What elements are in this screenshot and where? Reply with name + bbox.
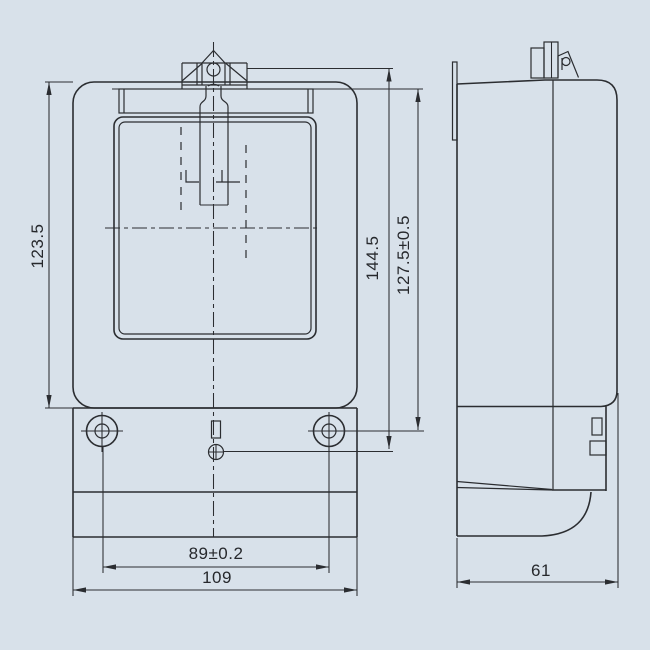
dimension-label: 89±0.2 <box>189 544 244 563</box>
arrowhead-left <box>73 587 86 592</box>
arrowhead-down <box>46 395 51 408</box>
meter-dimension-drawing: 123.5 144.5 127.5±0.5 89±0.2 109 61 <box>0 0 650 650</box>
seal-slot <box>212 421 221 438</box>
dimension-127-5: 127.5±0.5 <box>350 89 424 431</box>
side-terminal-screws <box>590 418 606 455</box>
dimension-label: 127.5±0.5 <box>394 215 413 295</box>
side-hanging-bracket <box>531 42 579 78</box>
arrowhead-down <box>386 436 391 449</box>
side-body-outline <box>457 80 617 407</box>
cover-seam-lines <box>457 482 552 491</box>
meter-body-outline <box>73 82 357 408</box>
mounting-screw-right <box>308 412 350 452</box>
terminal-screw-lower <box>590 441 606 455</box>
drawing-canvas: 123.5 144.5 127.5±0.5 89±0.2 109 61 <box>0 0 650 650</box>
dimension-label: 61 <box>531 561 551 580</box>
center-seal <box>209 421 224 460</box>
hook-hole <box>562 58 570 66</box>
arrowhead-left <box>457 579 470 584</box>
arrowhead-right <box>605 579 618 584</box>
arrowhead-up <box>415 89 420 102</box>
arrowhead-down <box>415 417 420 430</box>
arrowhead-left <box>103 564 116 569</box>
arrowhead-right <box>344 587 357 592</box>
dimension-123-5: 123.5 <box>28 82 73 408</box>
terminal-screw-upper <box>592 418 602 435</box>
dimension-label: 123.5 <box>28 223 47 268</box>
cover-bottom-curve <box>457 492 591 536</box>
dimension-label: 109 <box>202 568 232 587</box>
front-view <box>45 42 423 537</box>
bracket-block-1 <box>531 48 544 78</box>
arrowhead-right <box>316 564 329 569</box>
dimension-89: 89±0.2 <box>103 447 329 573</box>
mounting-screw-left <box>81 412 123 452</box>
side-terminal-cover <box>457 482 606 537</box>
name-plate <box>119 89 313 113</box>
dimension-label: 144.5 <box>363 235 382 280</box>
dimension-144-5: 144.5 <box>224 69 393 452</box>
side-view <box>453 42 618 536</box>
hanging-bracket <box>182 51 247 90</box>
bracket-gussets <box>182 64 247 82</box>
arrowhead-up <box>386 69 391 82</box>
arrowhead-up <box>46 82 51 95</box>
name-plate-outline <box>119 89 313 113</box>
